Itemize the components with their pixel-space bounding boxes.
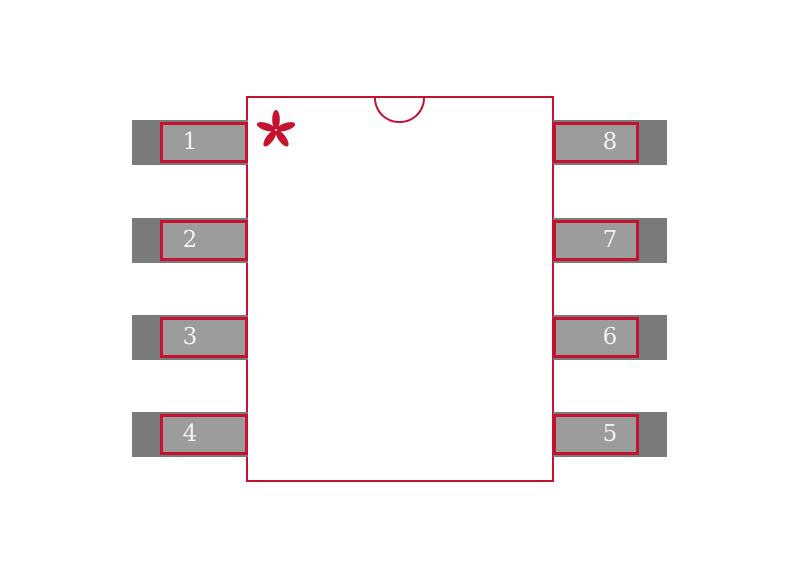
pin-8-number: 8 [553, 120, 667, 165]
package-body [246, 96, 554, 482]
pin-7-number: 7 [553, 218, 667, 263]
pin-1: 1 [132, 120, 248, 165]
pin-2: 2 [132, 218, 248, 263]
pin-6: 6 [553, 315, 667, 360]
footprint-canvas: 1 2 3 4 8 7 6 5 [0, 0, 800, 579]
pin-3: 3 [132, 315, 248, 360]
pin1-asterisk-icon [256, 108, 296, 152]
pin-5: 5 [553, 412, 667, 457]
pin-4-number: 4 [132, 412, 248, 457]
pin-1-number: 1 [132, 120, 248, 165]
pin-6-number: 6 [553, 315, 667, 360]
pin-7: 7 [553, 218, 667, 263]
pin-8: 8 [553, 120, 667, 165]
pin-4: 4 [132, 412, 248, 457]
pin-2-number: 2 [132, 218, 248, 263]
pin-3-number: 3 [132, 315, 248, 360]
pin-5-number: 5 [553, 412, 667, 457]
